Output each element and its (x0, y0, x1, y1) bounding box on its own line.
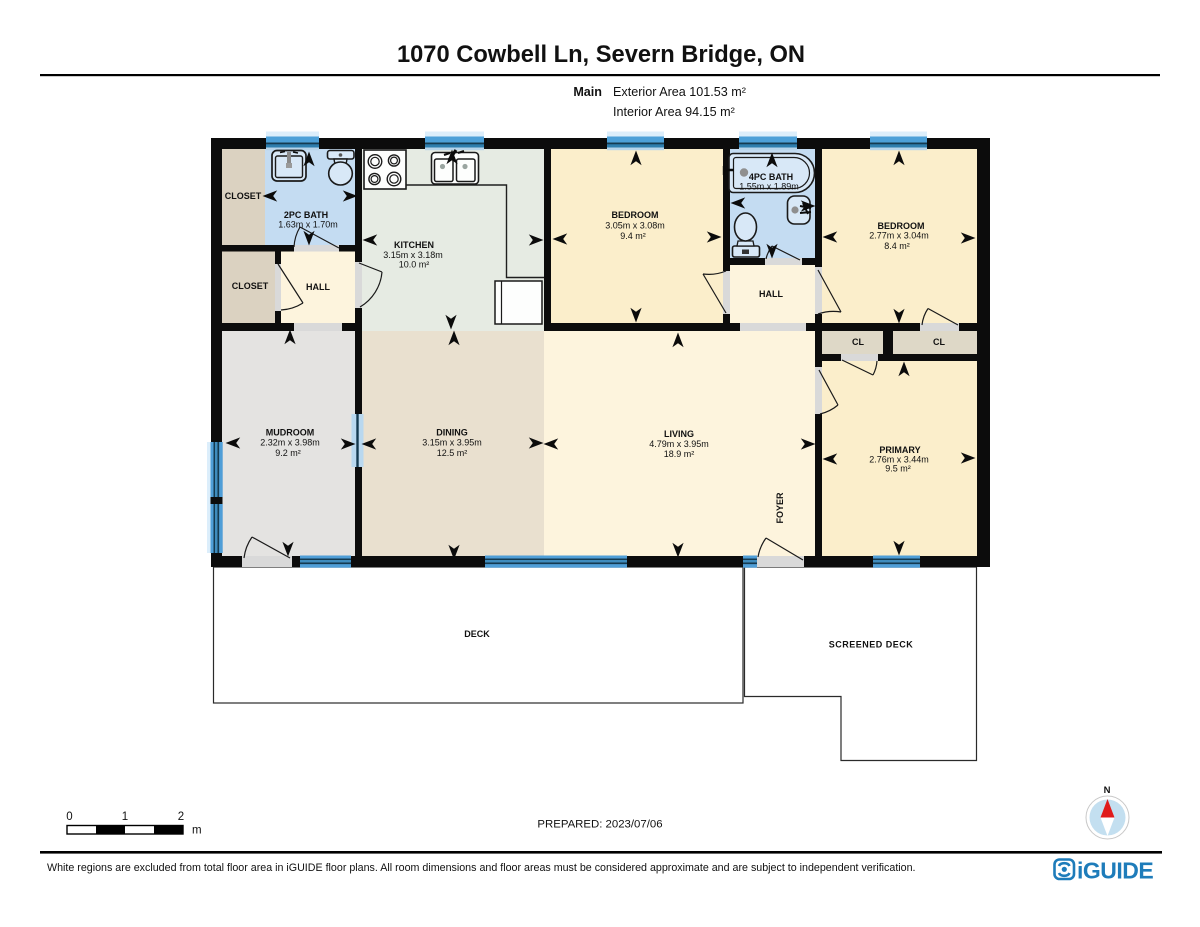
svg-text:BEDROOM: BEDROOM (878, 221, 925, 231)
svg-text:3.05m x 3.08m: 3.05m x 3.08m (605, 221, 665, 231)
svg-text:White regions are excluded fro: White regions are excluded from total fl… (47, 862, 916, 874)
svg-text:1070 Cowbell Ln, Severn Bridge: 1070 Cowbell Ln, Severn Bridge, ON (397, 42, 805, 68)
svg-text:4PC BATH: 4PC BATH (749, 172, 793, 182)
svg-text:2PC BATH: 2PC BATH (284, 210, 328, 220)
svg-text:Main: Main (573, 85, 602, 99)
svg-text:2.77m x 3.04m: 2.77m x 3.04m (869, 231, 929, 241)
svg-text:MUDROOM: MUDROOM (266, 428, 315, 438)
svg-text:DINING: DINING (436, 428, 468, 438)
svg-text:9.4 m²: 9.4 m² (620, 231, 646, 241)
svg-text:CLOSET: CLOSET (225, 191, 262, 201)
svg-text:Exterior Area 101.53 m²: Exterior Area 101.53 m² (613, 85, 746, 99)
svg-text:N: N (1104, 785, 1111, 796)
svg-text:4.79m x 3.95m: 4.79m x 3.95m (649, 439, 709, 449)
svg-text:10.0 m²: 10.0 m² (399, 260, 430, 270)
svg-text:0: 0 (66, 811, 72, 823)
svg-text:CLOSET: CLOSET (232, 281, 269, 291)
svg-text:1.55m x 1.89m: 1.55m x 1.89m (739, 182, 799, 192)
svg-text:LIVING: LIVING (664, 429, 694, 439)
svg-text:2.32m x 3.98m: 2.32m x 3.98m (260, 438, 320, 448)
svg-text:CL: CL (852, 337, 864, 347)
svg-text:1.63m x 1.70m: 1.63m x 1.70m (278, 220, 338, 230)
svg-text:3.15m x 3.95m: 3.15m x 3.95m (422, 438, 482, 448)
svg-text:9.5 m²: 9.5 m² (885, 464, 911, 474)
svg-text:m: m (192, 825, 202, 837)
svg-text:SCREENED DECK: SCREENED DECK (829, 640, 914, 650)
svg-text:18.9 m²: 18.9 m² (664, 449, 695, 459)
svg-text:PRIMARY: PRIMARY (879, 445, 920, 455)
svg-text:3.15m x 3.18m: 3.15m x 3.18m (383, 250, 443, 260)
svg-text:2: 2 (178, 811, 184, 823)
svg-text:Interior Area 94.15 m²: Interior Area 94.15 m² (613, 105, 735, 119)
svg-text:CL: CL (933, 337, 945, 347)
svg-text:12.5 m²: 12.5 m² (437, 448, 468, 458)
svg-text:BEDROOM: BEDROOM (612, 210, 659, 220)
svg-text:HALL: HALL (759, 289, 783, 299)
svg-text:KITCHEN: KITCHEN (394, 240, 434, 250)
svg-text:9.2 m²: 9.2 m² (275, 448, 301, 458)
svg-text:PREPARED: 2023/07/06: PREPARED: 2023/07/06 (537, 819, 662, 831)
svg-text:FOYER: FOYER (775, 492, 785, 524)
svg-text:DECK: DECK (464, 629, 490, 639)
svg-text:8.4 m²: 8.4 m² (884, 241, 910, 251)
svg-text:iGUIDE: iGUIDE (1077, 858, 1153, 884)
svg-text:1: 1 (122, 811, 128, 823)
svg-text:HALL: HALL (306, 282, 330, 292)
